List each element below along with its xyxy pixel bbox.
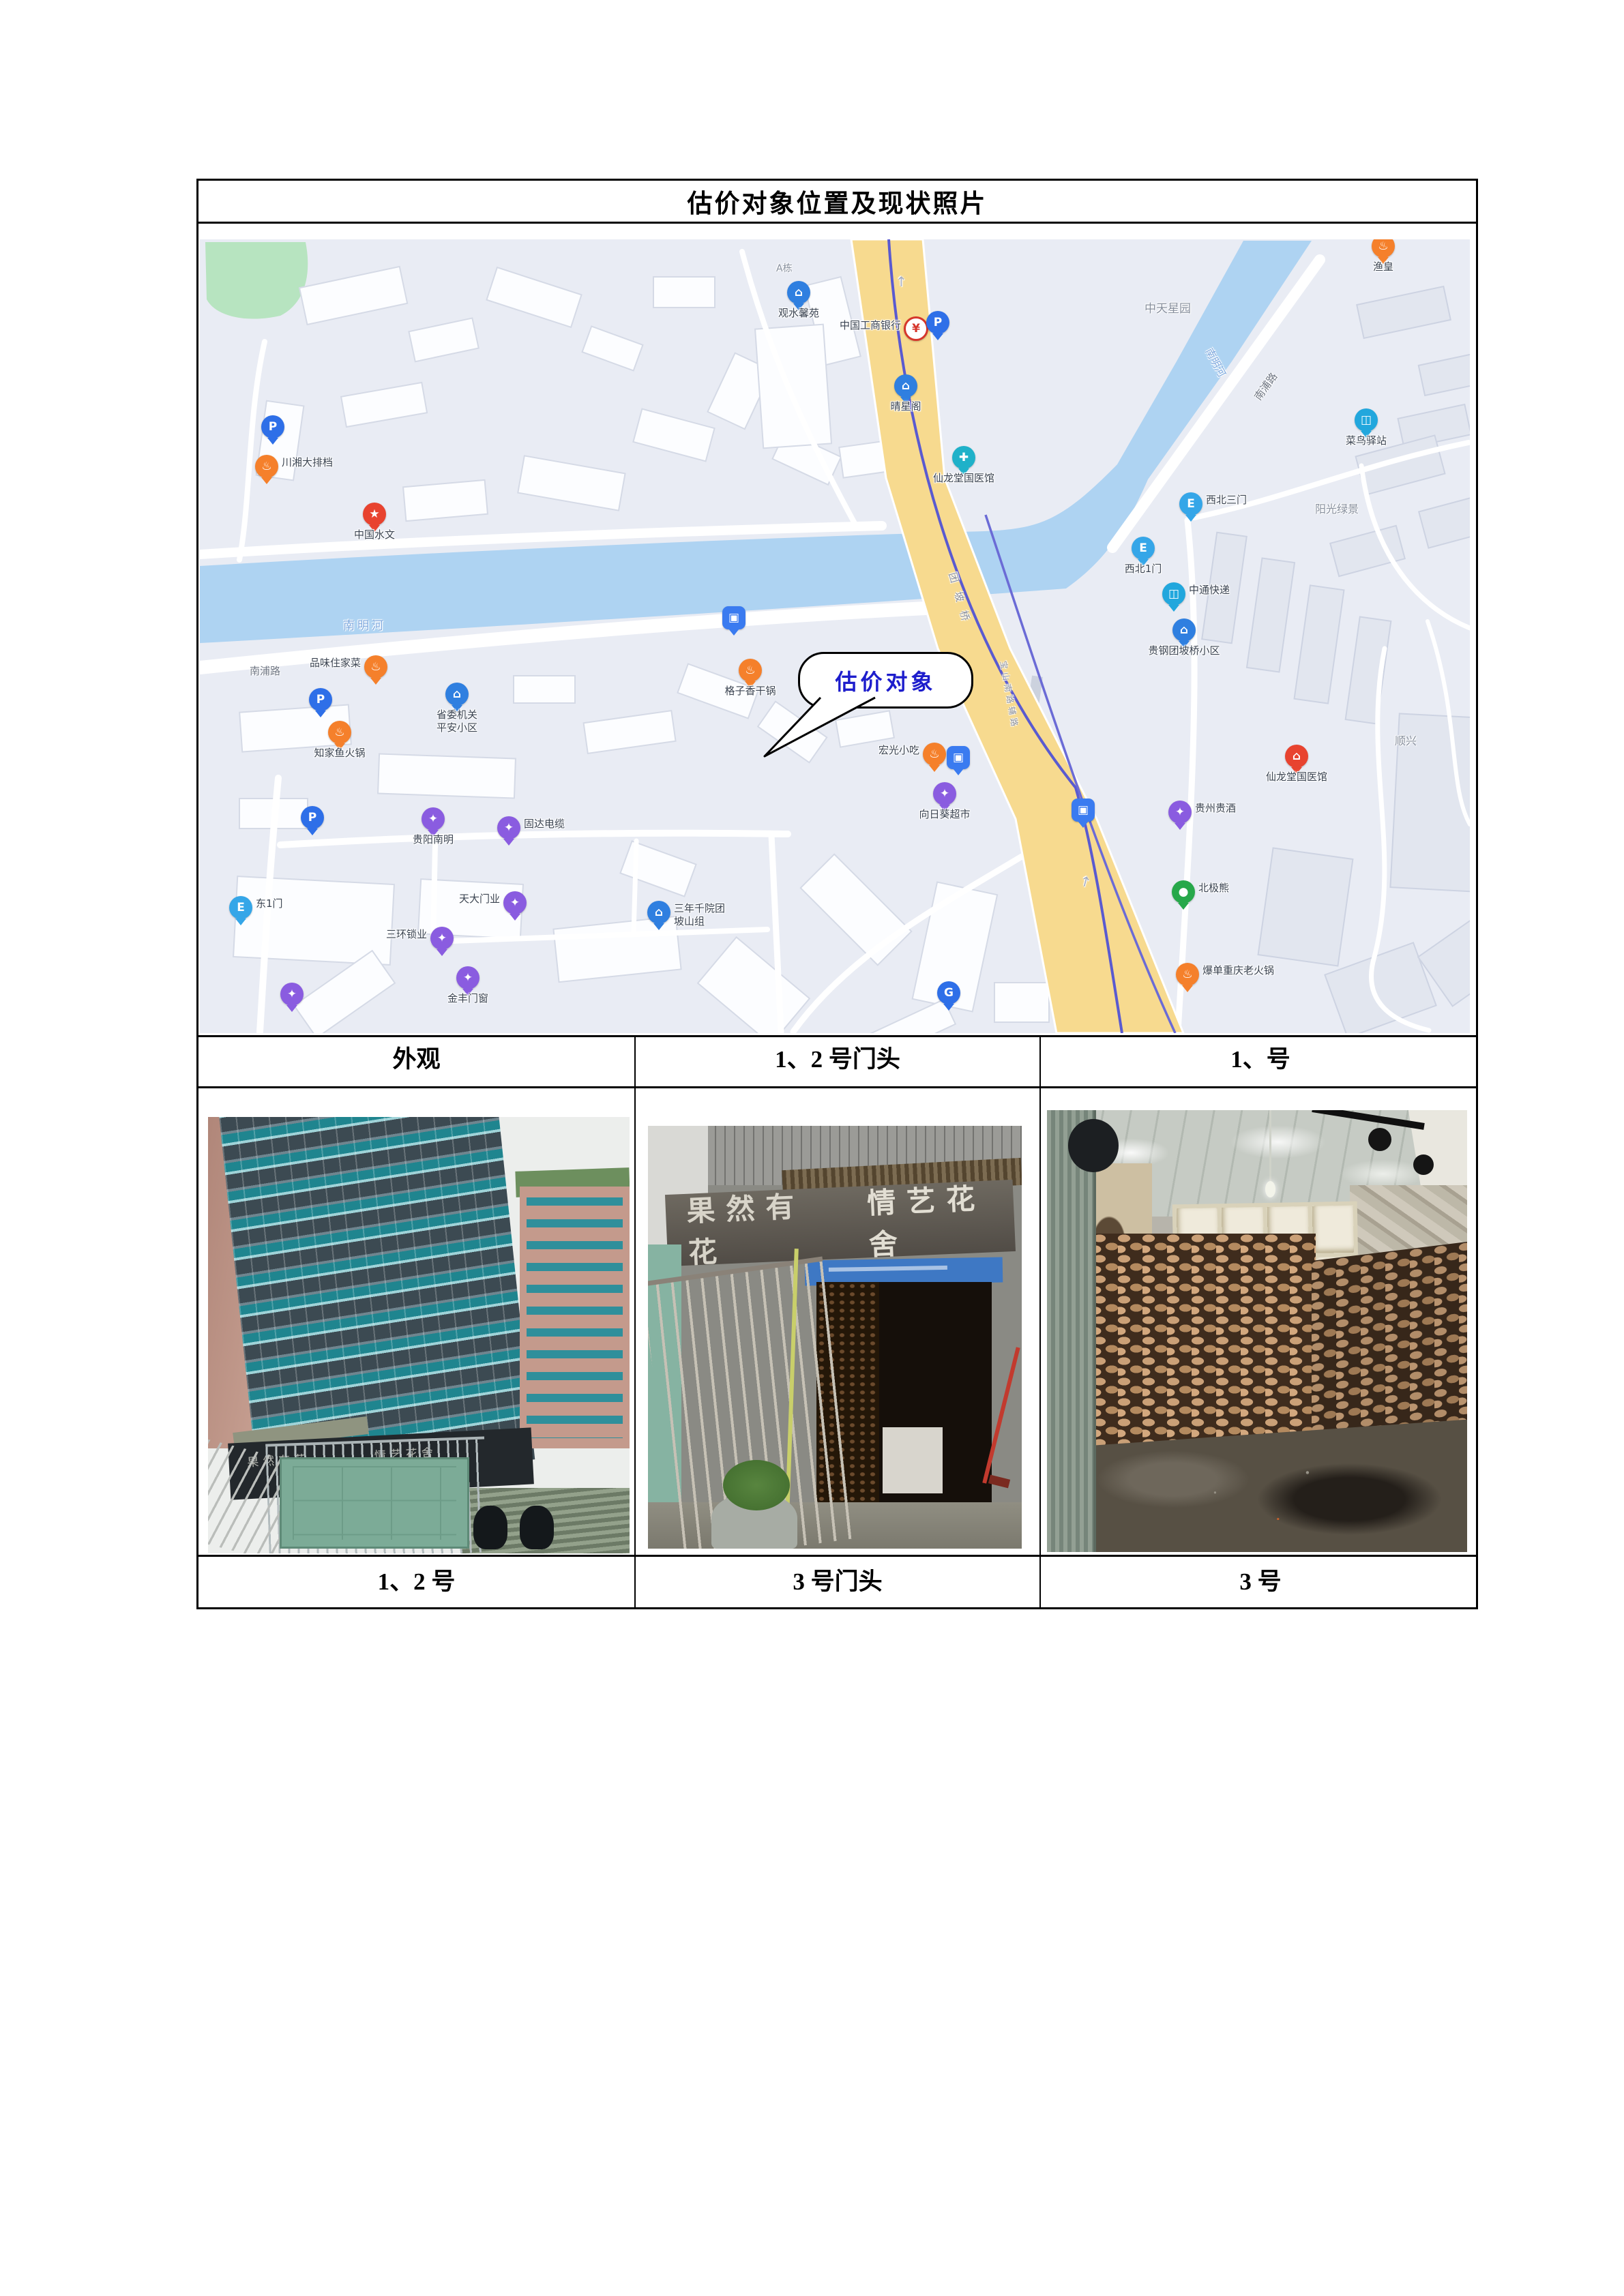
bld-icon: ⌂ — [1172, 618, 1196, 642]
courier-icon: ◫ — [1162, 582, 1185, 606]
poi-label: 晴星阁 — [890, 400, 921, 413]
poi-label: 固达电缆 — [524, 818, 565, 831]
appraisal-object-callout: 估价对象 — [798, 652, 973, 709]
spotlight — [1413, 1154, 1434, 1175]
photo-row: 果然有花 情艺花舍 果然有花 — [198, 1088, 1476, 1557]
poi-label: 中国水文 — [354, 528, 395, 541]
map-text-label: 中天星园 — [1145, 299, 1191, 316]
caption-no-3-storefront: 3 号门头 — [636, 1557, 1041, 1609]
bld-icon: ⌂ — [445, 683, 469, 706]
photo-interior — [1047, 1110, 1467, 1552]
header-storefront-1-2: 1、2 号门头 — [636, 1037, 1041, 1086]
poi-label: 贵阳南明 — [413, 833, 454, 846]
header-no-1: 1、号 — [1041, 1037, 1480, 1086]
poi-label: 宏光小吃 — [879, 744, 919, 757]
food-icon: ♨ — [364, 655, 387, 679]
bear-icon: ● — [1172, 880, 1195, 904]
poi-label: 渔皇 — [1373, 260, 1393, 273]
shop-icon: ✦ — [280, 983, 304, 1006]
bus-icon: ▣ — [1072, 799, 1095, 822]
poi-label: 三年千院团 坡山组 — [674, 902, 725, 928]
shop-icon: ✦ — [422, 807, 445, 831]
transformer-box — [280, 1457, 469, 1549]
callout-text: 估价对象 — [835, 665, 936, 696]
poi-label: 天大门业 — [459, 893, 500, 906]
poi-label: 仙龙堂国医馆 — [933, 472, 994, 485]
table-title-row: 估价对象位置及现状照片 — [198, 181, 1476, 224]
roller-shutter — [1047, 1110, 1096, 1552]
clinic-icon: ⌂ — [1285, 745, 1308, 768]
parking-icon: P — [301, 806, 324, 829]
poi-label: 西北三门 — [1206, 494, 1247, 507]
shop-icon: ✦ — [503, 891, 527, 914]
map-text-label: A栋 — [776, 261, 793, 275]
poi-label: 金丰门窗 — [447, 992, 488, 1005]
poi-label: 知家鱼火锅 — [314, 747, 365, 760]
food-icon: ♨ — [739, 659, 762, 682]
header-exterior: 外观 — [198, 1037, 636, 1086]
shop-icon: ✦ — [933, 782, 956, 805]
bld-icon: ⌂ — [894, 374, 917, 398]
poi-label: 中通快递 — [1189, 584, 1230, 597]
poi-label: 格子香干锅 — [724, 685, 776, 698]
food-icon: ♨ — [328, 721, 351, 744]
shop-icon: ✦ — [1168, 801, 1192, 824]
shop-signboard: 果然有花 情艺花舍 — [665, 1180, 1016, 1267]
parking-icon: P — [309, 688, 332, 711]
photo-header-row: 外观 1、2 号门头 1、号 — [198, 1037, 1476, 1088]
gas-icon: G — [937, 981, 960, 1004]
document-page: 估价对象位置及现状照片 — [0, 0, 1624, 2296]
poi-label: 北极熊 — [1198, 882, 1229, 895]
map-text-label: 南明河 — [343, 616, 386, 633]
map-base-art — [200, 239, 1470, 1033]
med-icon: ✚ — [952, 446, 975, 469]
poi-label: 中国工商银行 — [840, 319, 901, 332]
parking-icon: P — [926, 311, 949, 334]
spotlight — [1368, 1128, 1391, 1151]
shop-icon: ✦ — [497, 816, 520, 839]
map-text-label: 顺兴 — [1395, 732, 1417, 748]
poi-label: 观水馨苑 — [778, 307, 819, 320]
poi-label: 贵钢团坡桥小区 — [1148, 644, 1220, 657]
motorbike — [473, 1506, 507, 1549]
poi-label: 贵州贵酒 — [1195, 802, 1236, 815]
shop-icon: ✦ — [456, 966, 479, 989]
caption-no-1-2: 1、2 号 — [198, 1557, 636, 1609]
motorbike — [520, 1506, 553, 1549]
map-text-label: 南浦路 — [250, 664, 280, 678]
food-icon: ♨ — [255, 455, 278, 478]
bank-icon: ¥ — [904, 316, 928, 341]
map-text-label: ↑ — [896, 273, 907, 290]
courier-icon: ◫ — [1355, 408, 1378, 432]
poi-label: 爆单重庆老火锅 — [1202, 964, 1274, 977]
poi-label: 东1门 — [256, 897, 283, 910]
photo-building-exterior: 果然有花 情艺花舍 — [208, 1117, 630, 1553]
poi-label: 品味住家菜 — [310, 657, 361, 670]
parking-icon: P — [261, 415, 284, 438]
star-icon: ★ — [363, 503, 386, 526]
poi-label: 仙龙堂国医馆 — [1266, 771, 1327, 784]
gate-icon: E — [1132, 537, 1155, 560]
gate-icon: E — [229, 896, 252, 919]
poi-label: 川湘大排档 — [282, 456, 333, 469]
page-title: 估价对象位置及现状照片 — [688, 183, 988, 220]
bus-icon: ▣ — [722, 606, 745, 629]
caption-no-3: 3 号 — [1041, 1557, 1480, 1609]
poi-label: 菜鸟驿站 — [1346, 434, 1387, 447]
bus-icon: ▣ — [947, 746, 970, 769]
photo-table: 估价对象位置及现状照片 — [196, 179, 1478, 1609]
food-icon: ♨ — [1176, 963, 1199, 986]
poi-label: 三环锁业 — [386, 928, 427, 941]
shop-sign-2: 情艺花舍 — [866, 1174, 1016, 1264]
location-map: 估价对象 P♨川湘大排档★中国水文⌂观水馨苑¥中国工商银行P⌂晴星阁✚仙龙堂国医… — [200, 239, 1470, 1033]
bld-icon: ⌂ — [787, 281, 810, 304]
shop-icon: ✦ — [430, 927, 454, 950]
gate-icon: E — [1179, 492, 1202, 516]
photo-storefront: 果然有花 情艺花舍 — [648, 1126, 1022, 1549]
photo-caption-row: 1、2 号 3 号门头 3 号 — [198, 1557, 1476, 1609]
poi-label: 省委机关 平安小区 — [437, 709, 477, 734]
food-icon: ♨ — [923, 743, 946, 766]
poi-label: 向日葵超市 — [919, 808, 970, 821]
map-row: 估价对象 P♨川湘大排档★中国水文⌂观水馨苑¥中国工商银行P⌂晴星阁✚仙龙堂国医… — [198, 224, 1476, 1037]
bld-icon: ⌂ — [647, 901, 670, 924]
poi-label: 西北1门 — [1125, 563, 1162, 576]
map-text-label: 阳光绿景 — [1315, 500, 1359, 516]
